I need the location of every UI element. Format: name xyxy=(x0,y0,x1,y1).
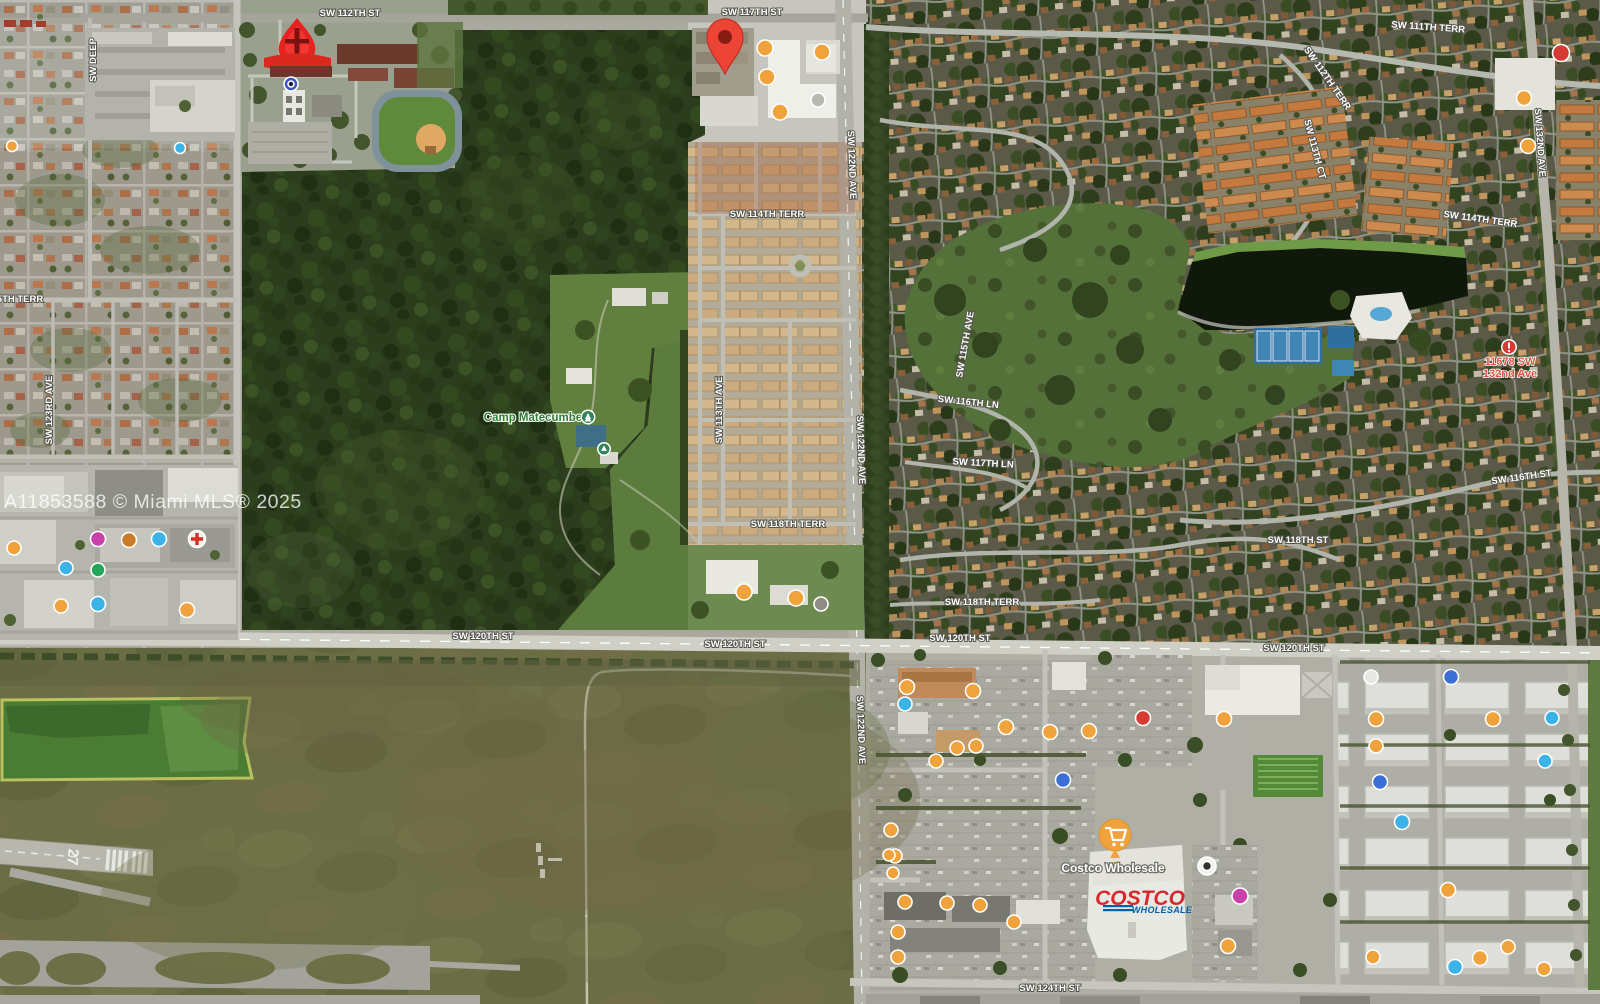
svg-text:A11853588 © Miami MLS® 2025: A11853588 © Miami MLS® 2025 xyxy=(4,491,302,513)
svg-text:SW 124TH ST: SW 124TH ST xyxy=(1019,983,1080,994)
svg-text:132nd Ave: 132nd Ave xyxy=(1483,368,1537,380)
svg-text:SW 120TH ST: SW 120TH ST xyxy=(704,639,765,650)
svg-text:SW 123RD AVE: SW 123RD AVE xyxy=(44,376,55,445)
svg-text:SW 114TH TERR: SW 114TH TERR xyxy=(730,209,805,220)
svg-text:WHOLESALE: WHOLESALE xyxy=(1132,905,1193,915)
svg-text:SW 120TH ST: SW 120TH ST xyxy=(1263,643,1324,654)
svg-text:SW 120TH ST: SW 120TH ST xyxy=(929,633,990,644)
svg-text:SW 120TH ST: SW 120TH ST xyxy=(452,631,513,642)
svg-text:Camp Matecumbe: Camp Matecumbe xyxy=(484,412,582,424)
svg-text:SW DEEP: SW DEEP xyxy=(88,37,99,81)
svg-text:11678 SW: 11678 SW xyxy=(1485,356,1536,368)
svg-text:SW 117TH ST: SW 117TH ST xyxy=(722,7,783,18)
svg-text:SW 118TH ST: SW 118TH ST xyxy=(1268,535,1329,546)
svg-text:5TH TERR: 5TH TERR xyxy=(0,294,43,305)
svg-text:SW 118TH TERR: SW 118TH TERR xyxy=(751,519,826,530)
svg-text:27: 27 xyxy=(63,848,81,866)
svg-text:SW 113TH AVE: SW 113TH AVE xyxy=(714,376,725,443)
svg-text:SW 112TH ST: SW 112TH ST xyxy=(320,8,381,19)
svg-text:Costco Wholesale: Costco Wholesale xyxy=(1061,861,1165,875)
svg-text:SW 118TH TERR: SW 118TH TERR xyxy=(945,597,1020,608)
